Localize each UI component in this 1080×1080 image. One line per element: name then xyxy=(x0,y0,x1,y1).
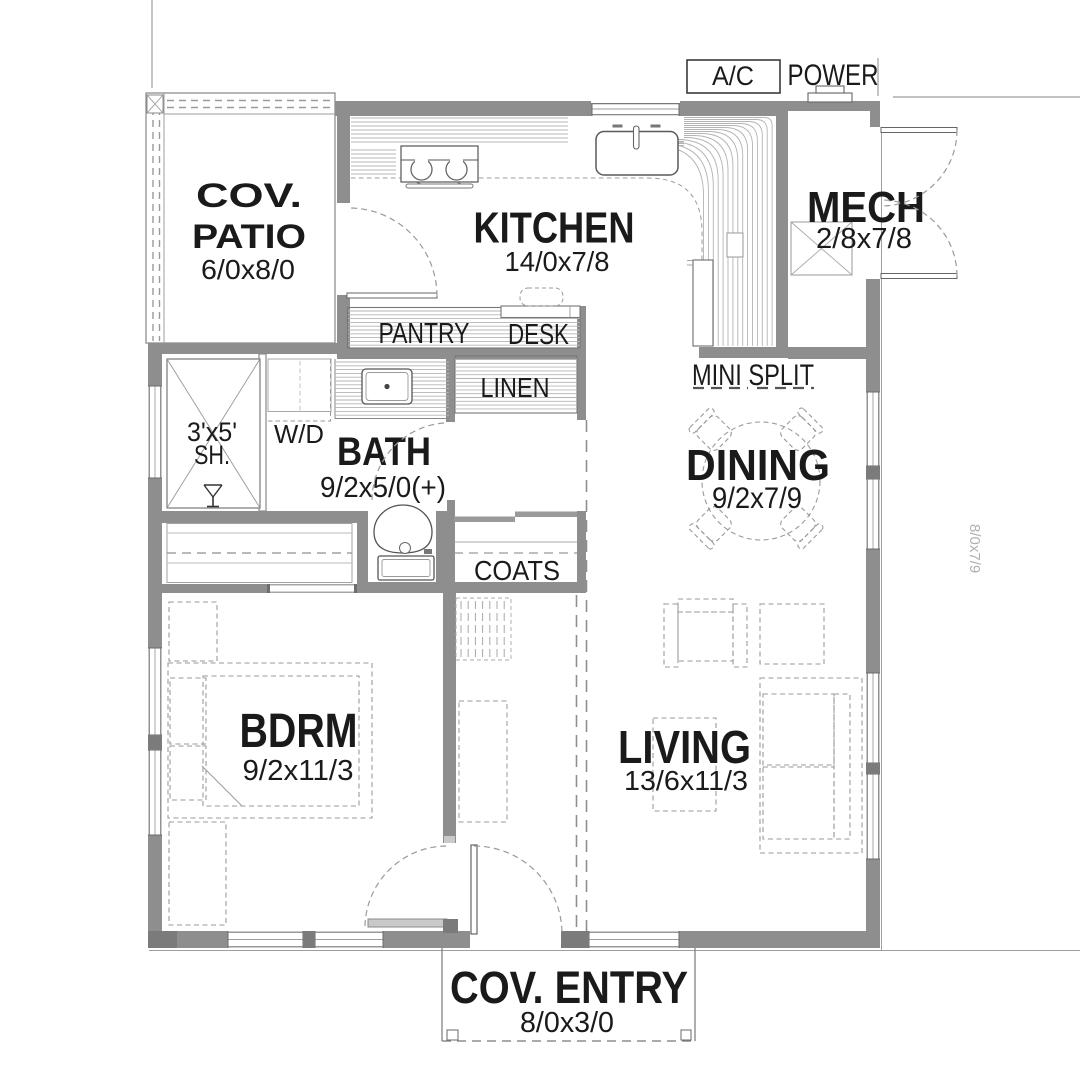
svg-text:PATIO: PATIO xyxy=(192,218,306,256)
svg-text:9/2x11/3: 9/2x11/3 xyxy=(243,755,354,787)
svg-text:14/0x7/8: 14/0x7/8 xyxy=(505,246,610,277)
svg-text:PANTRY: PANTRY xyxy=(379,318,470,350)
svg-text:DESK: DESK xyxy=(508,319,569,351)
svg-text:A/C: A/C xyxy=(712,61,754,91)
svg-text:W/D: W/D xyxy=(274,419,324,449)
svg-text:COV. ENTRY: COV. ENTRY xyxy=(450,962,688,1013)
svg-text:POWER: POWER xyxy=(788,59,879,92)
svg-text:8/0x7/9: 8/0x7/9 xyxy=(966,524,983,573)
svg-text:13/6x11/3: 13/6x11/3 xyxy=(624,765,748,796)
svg-text:LINEN: LINEN xyxy=(481,372,550,403)
svg-text:COV.: COV. xyxy=(196,177,302,215)
svg-text:COATS: COATS xyxy=(474,555,560,586)
svg-text:2/8x7/8: 2/8x7/8 xyxy=(816,223,912,255)
svg-text:SH.: SH. xyxy=(194,440,230,470)
svg-text:BATH: BATH xyxy=(337,430,431,474)
svg-text:6/0x8/0: 6/0x8/0 xyxy=(201,254,295,285)
svg-text:9/2x5/0(+): 9/2x5/0(+) xyxy=(320,472,446,504)
svg-text:BDRM: BDRM xyxy=(240,705,358,758)
svg-text:8/0x3/0: 8/0x3/0 xyxy=(520,1007,614,1039)
svg-text:9/2x7/9: 9/2x7/9 xyxy=(712,482,802,515)
